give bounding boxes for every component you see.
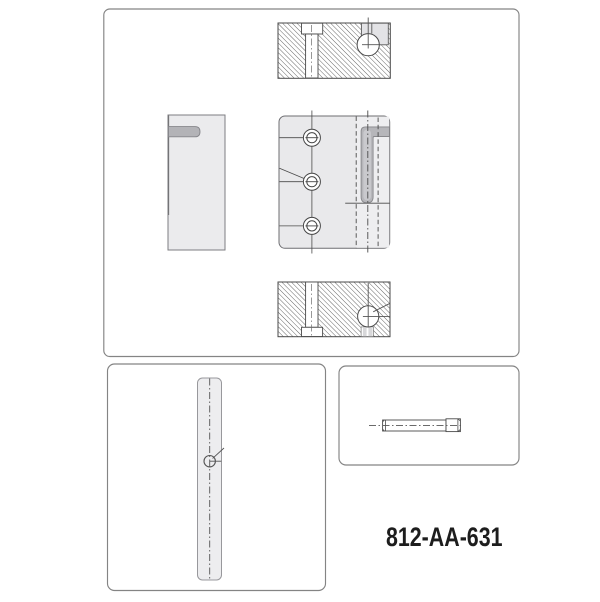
svg-text:812-AA-631: 812-AA-631 [386, 522, 503, 552]
